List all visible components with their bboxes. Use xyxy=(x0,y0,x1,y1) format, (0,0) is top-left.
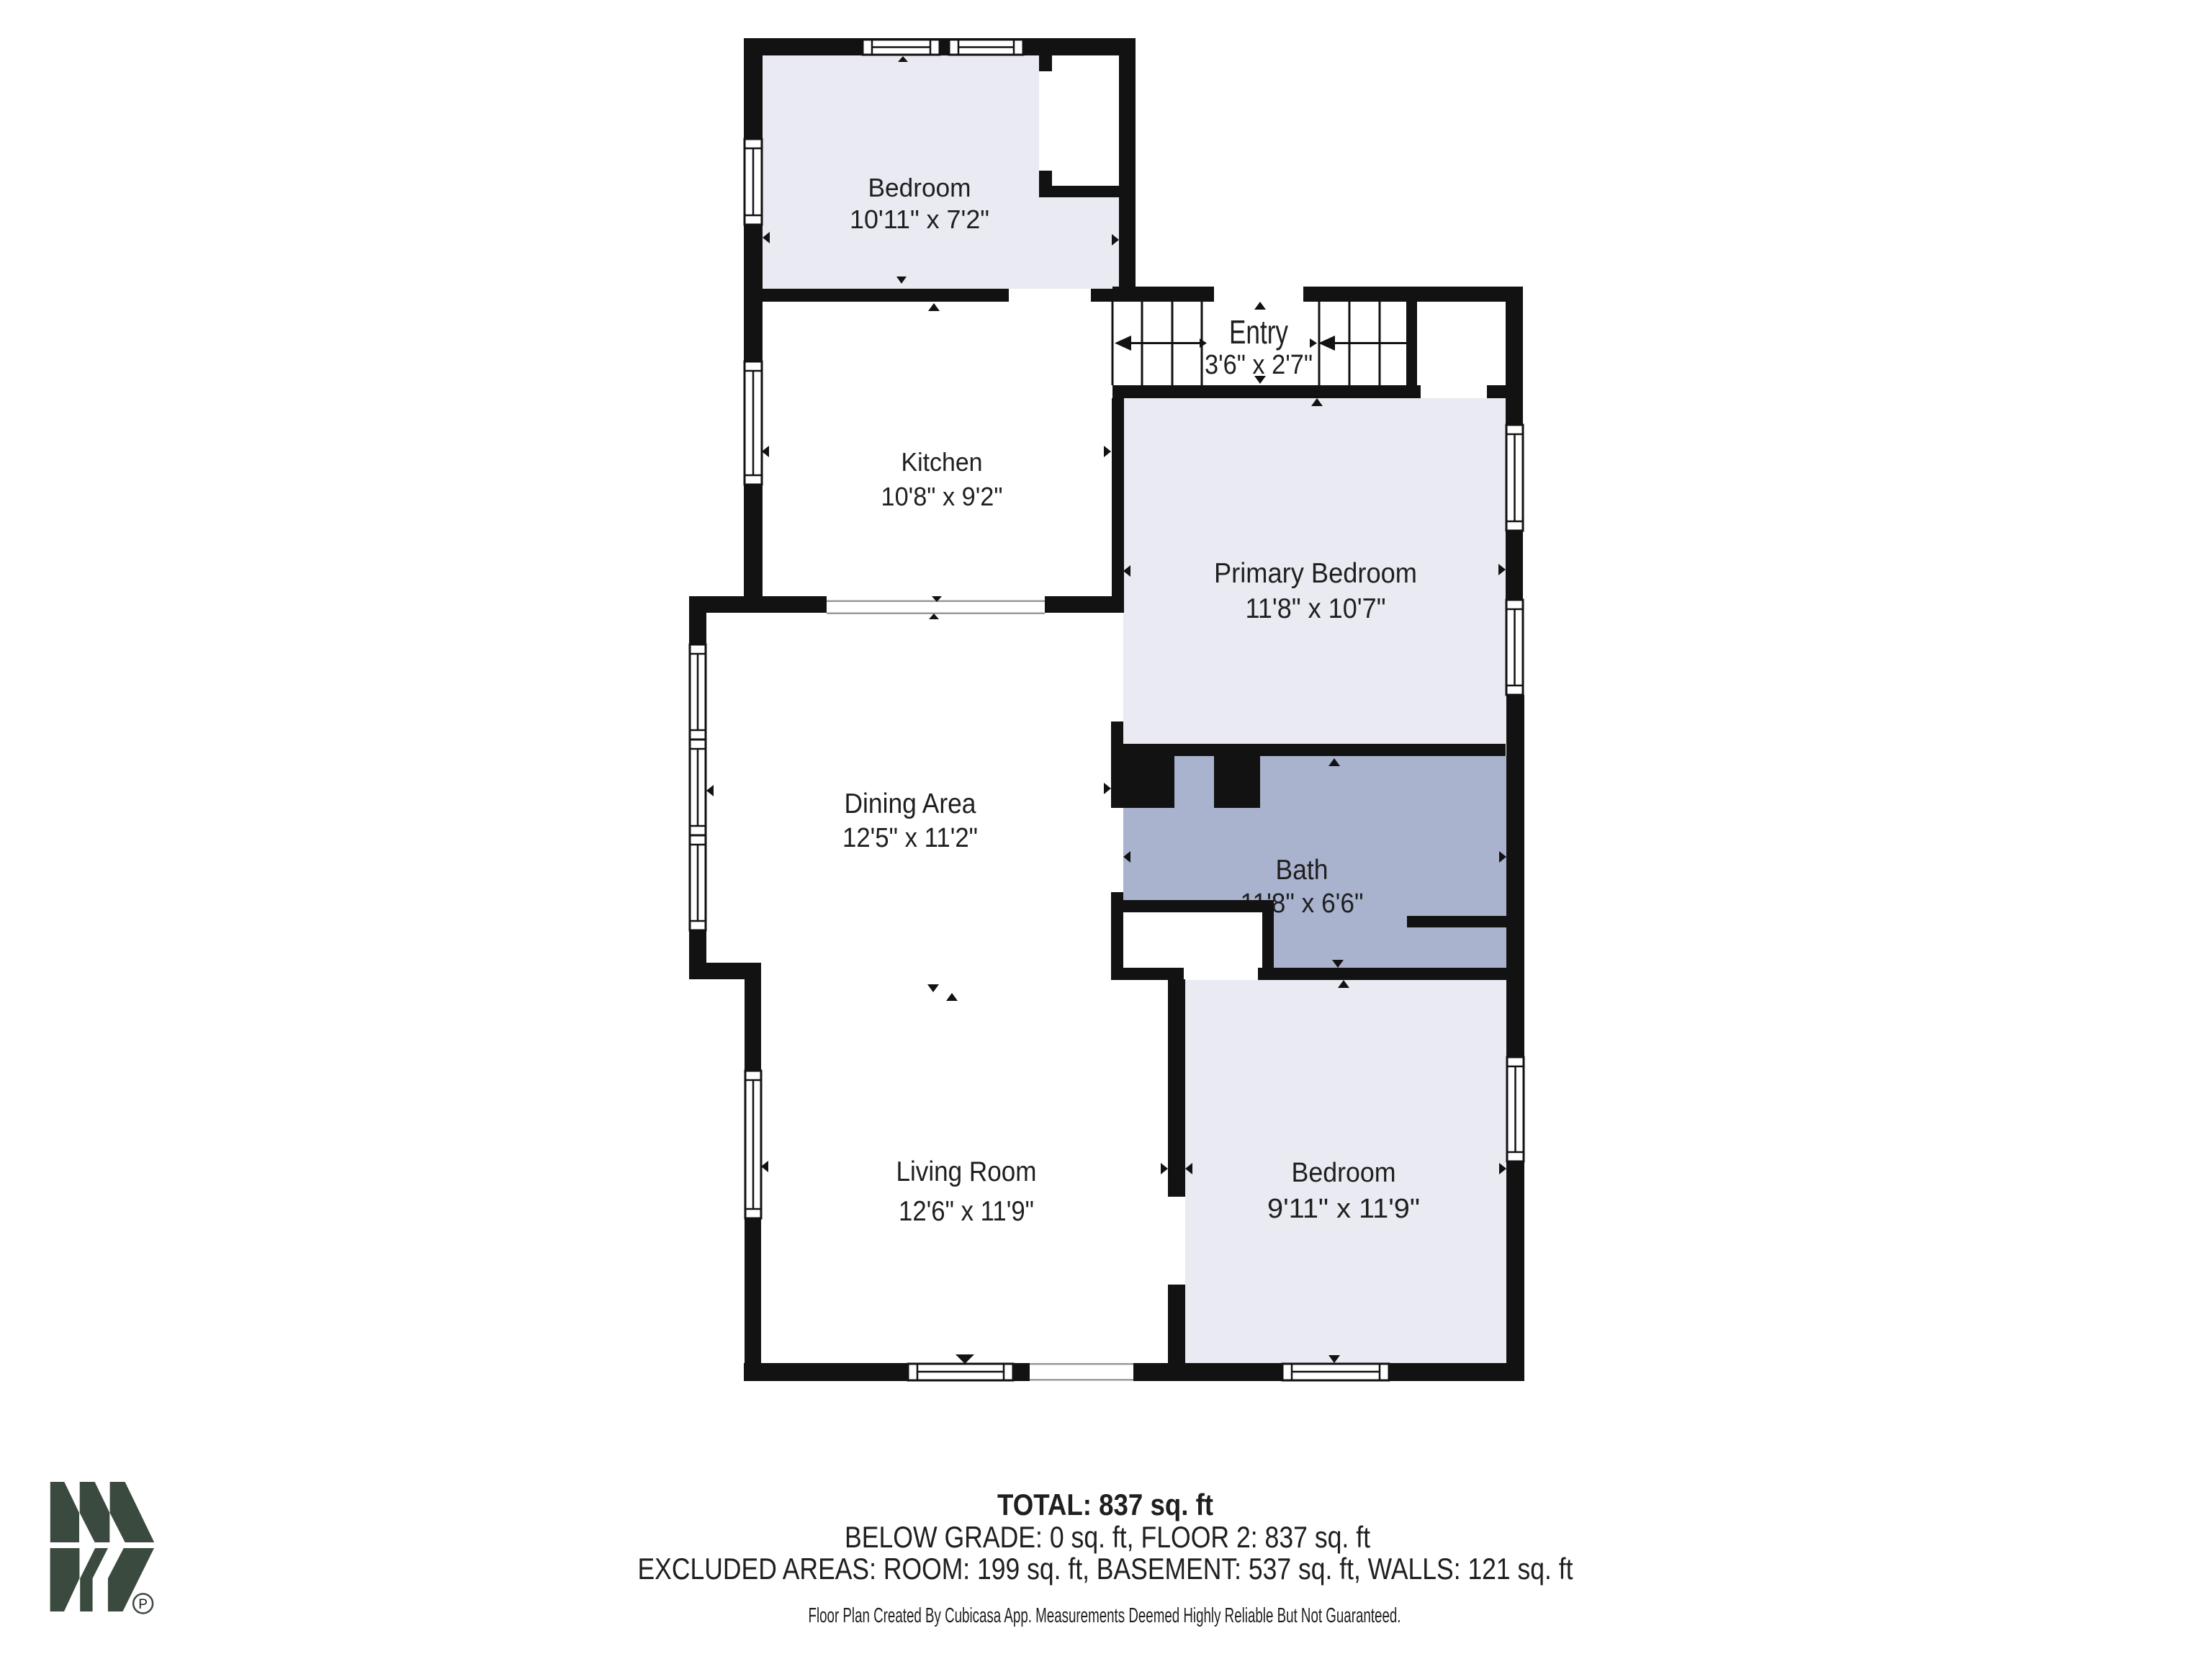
svg-text:Bedroom: Bedroom xyxy=(1292,1158,1396,1188)
svg-text:TOTAL: 837 sq. ft: TOTAL: 837 sq. ft xyxy=(997,1488,1213,1521)
svg-text:BELOW GRADE: 0 sq. ft, FLOOR 2: BELOW GRADE: 0 sq. ft, FLOOR 2: 837 sq. … xyxy=(845,1520,1370,1554)
svg-text:12'6" x 11'9": 12'6" x 11'9" xyxy=(899,1196,1034,1227)
svg-text:3'6" x 2'7": 3'6" x 2'7" xyxy=(1205,350,1313,380)
svg-text:Bedroom: Bedroom xyxy=(868,173,971,202)
svg-text:Dining Area: Dining Area xyxy=(845,788,976,819)
svg-text:Bath: Bath xyxy=(1276,855,1328,886)
svg-text:Primary Bedroom: Primary Bedroom xyxy=(1214,558,1417,589)
svg-text:10'8" x 9'2": 10'8" x 9'2" xyxy=(881,482,1003,511)
svg-text:11'8" x 10'7": 11'8" x 10'7" xyxy=(1246,593,1386,624)
svg-text:P: P xyxy=(138,1597,148,1612)
svg-text:EXCLUDED AREAS: ROOM: 199 sq.: EXCLUDED AREAS: ROOM: 199 sq. ft, BASEME… xyxy=(638,1552,1573,1586)
svg-text:Floor Plan Created By Cubicasa: Floor Plan Created By Cubicasa App. Meas… xyxy=(809,1604,1401,1627)
svg-text:12'5" x 11'2": 12'5" x 11'2" xyxy=(842,823,978,853)
svg-text:9'11" x 11'9": 9'11" x 11'9" xyxy=(1267,1194,1420,1224)
svg-text:10'11" x 7'2": 10'11" x 7'2" xyxy=(850,204,989,234)
svg-text:Living Room: Living Room xyxy=(896,1156,1037,1187)
svg-text:Entry: Entry xyxy=(1229,313,1288,351)
svg-text:Kitchen: Kitchen xyxy=(902,447,983,477)
